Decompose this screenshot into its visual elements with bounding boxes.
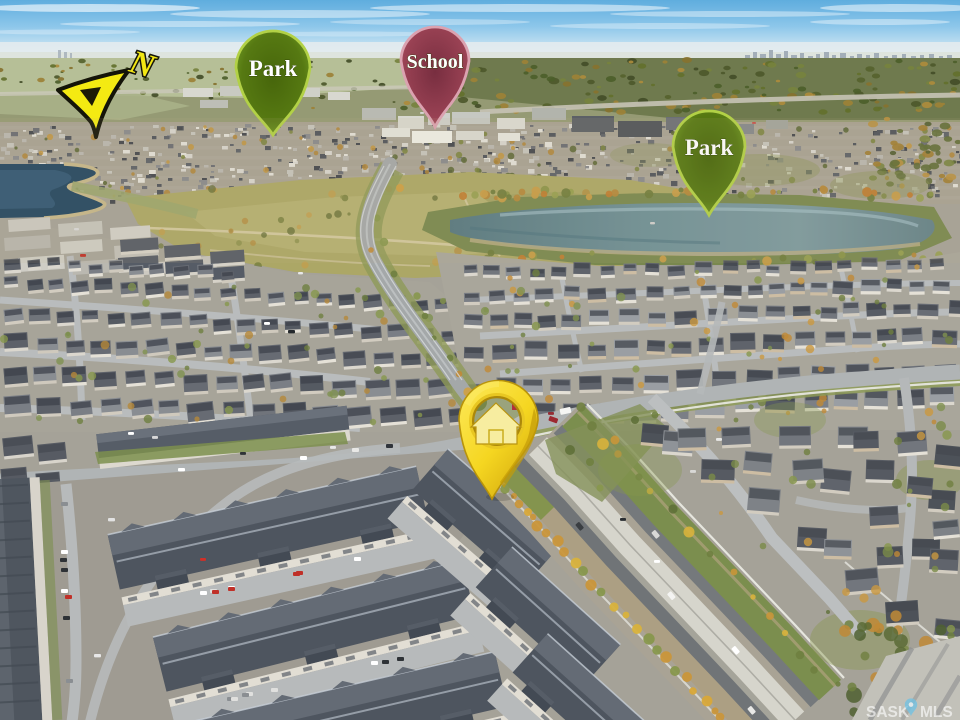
svg-text:School: School bbox=[407, 51, 464, 73]
svg-text:SASK: SASK bbox=[866, 704, 910, 720]
svg-text:MLS: MLS bbox=[920, 704, 953, 720]
svg-text:Park: Park bbox=[249, 56, 298, 81]
